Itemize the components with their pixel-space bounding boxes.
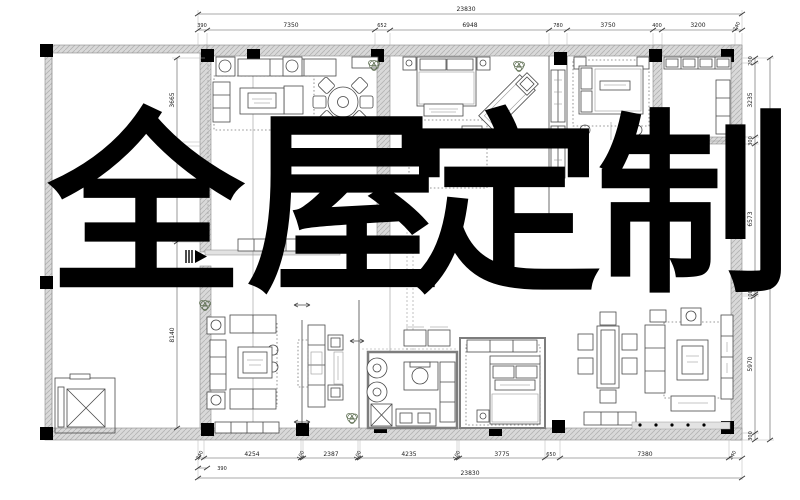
dim-label: 100 (296, 450, 306, 461)
dim-bottom-total: 23830 (460, 470, 479, 477)
dim-label: 100 (353, 450, 363, 461)
dim-label: 3665 (169, 92, 176, 107)
dim-label: 240 (728, 450, 738, 461)
dim-label: 390 (217, 466, 227, 472)
dim-label: 3775 (494, 451, 509, 458)
dim-label: 200 (748, 56, 754, 66)
dim-label: 100 (748, 290, 754, 300)
dim-label: 390 (197, 23, 207, 29)
floor-plan-drawing: 23830 390 7350 652 6948 780 3750 400 320… (0, 0, 800, 500)
dim-label: 150 (170, 139, 176, 149)
plant-icon (514, 62, 525, 72)
dim-label: 650 (546, 452, 556, 458)
dim-label: 4254 (244, 451, 259, 458)
dimension-bottom: 240 4254 100 2387 100 4235 100 3775 650 … (195, 440, 745, 480)
dim-label: 652 (377, 23, 387, 29)
dim-label: 7380 (637, 451, 652, 458)
bedroom-bottom (460, 338, 545, 428)
display-room-right (664, 57, 731, 134)
dim-label: 2387 (323, 451, 338, 458)
elevator-lobby (55, 250, 207, 433)
dim-label: 6948 (462, 22, 477, 29)
dim-right-total: 17160 (762, 239, 769, 258)
island-display-room (294, 303, 364, 424)
dimension-left: 3665 150 8140 (169, 56, 205, 430)
dimension-right: 200 3235 300 6573 100 5970 300 17160 (742, 56, 774, 442)
bathroom (367, 352, 457, 428)
living-room-bottom-right (632, 308, 733, 429)
dim-label: 300 (748, 431, 754, 441)
floorplan-screenshot: 23830 390 7350 652 6948 780 3750 400 320… (0, 0, 800, 500)
dim-label: 3200 (690, 22, 705, 29)
dimension-top: 23830 390 7350 652 6948 780 3750 400 320… (195, 6, 745, 45)
dim-label: 400 (652, 23, 662, 29)
dim-label: 3235 (747, 92, 754, 107)
dim-label: 780 (553, 23, 563, 29)
bedroom-top-right (573, 57, 649, 140)
dim-label: 300 (748, 136, 754, 146)
dim-label: 7350 (283, 22, 298, 29)
living-room-top-left (213, 57, 380, 251)
dim-label: 240 (195, 450, 205, 461)
plant-icon (347, 414, 358, 424)
dim-label: 100 (452, 450, 462, 461)
center-corridor-detail (362, 327, 458, 349)
dim-label: 3750 (600, 22, 615, 29)
dim-label: 5970 (747, 356, 754, 371)
bedroom-middle (403, 57, 538, 188)
dim-label: 4235 (401, 451, 416, 458)
dim-top-total: 23830 (456, 6, 475, 13)
dim-label: 6573 (747, 211, 754, 226)
living-room-bottom-left (200, 301, 280, 434)
dining-bottom-right (578, 312, 637, 425)
dim-label: 8140 (169, 327, 176, 342)
